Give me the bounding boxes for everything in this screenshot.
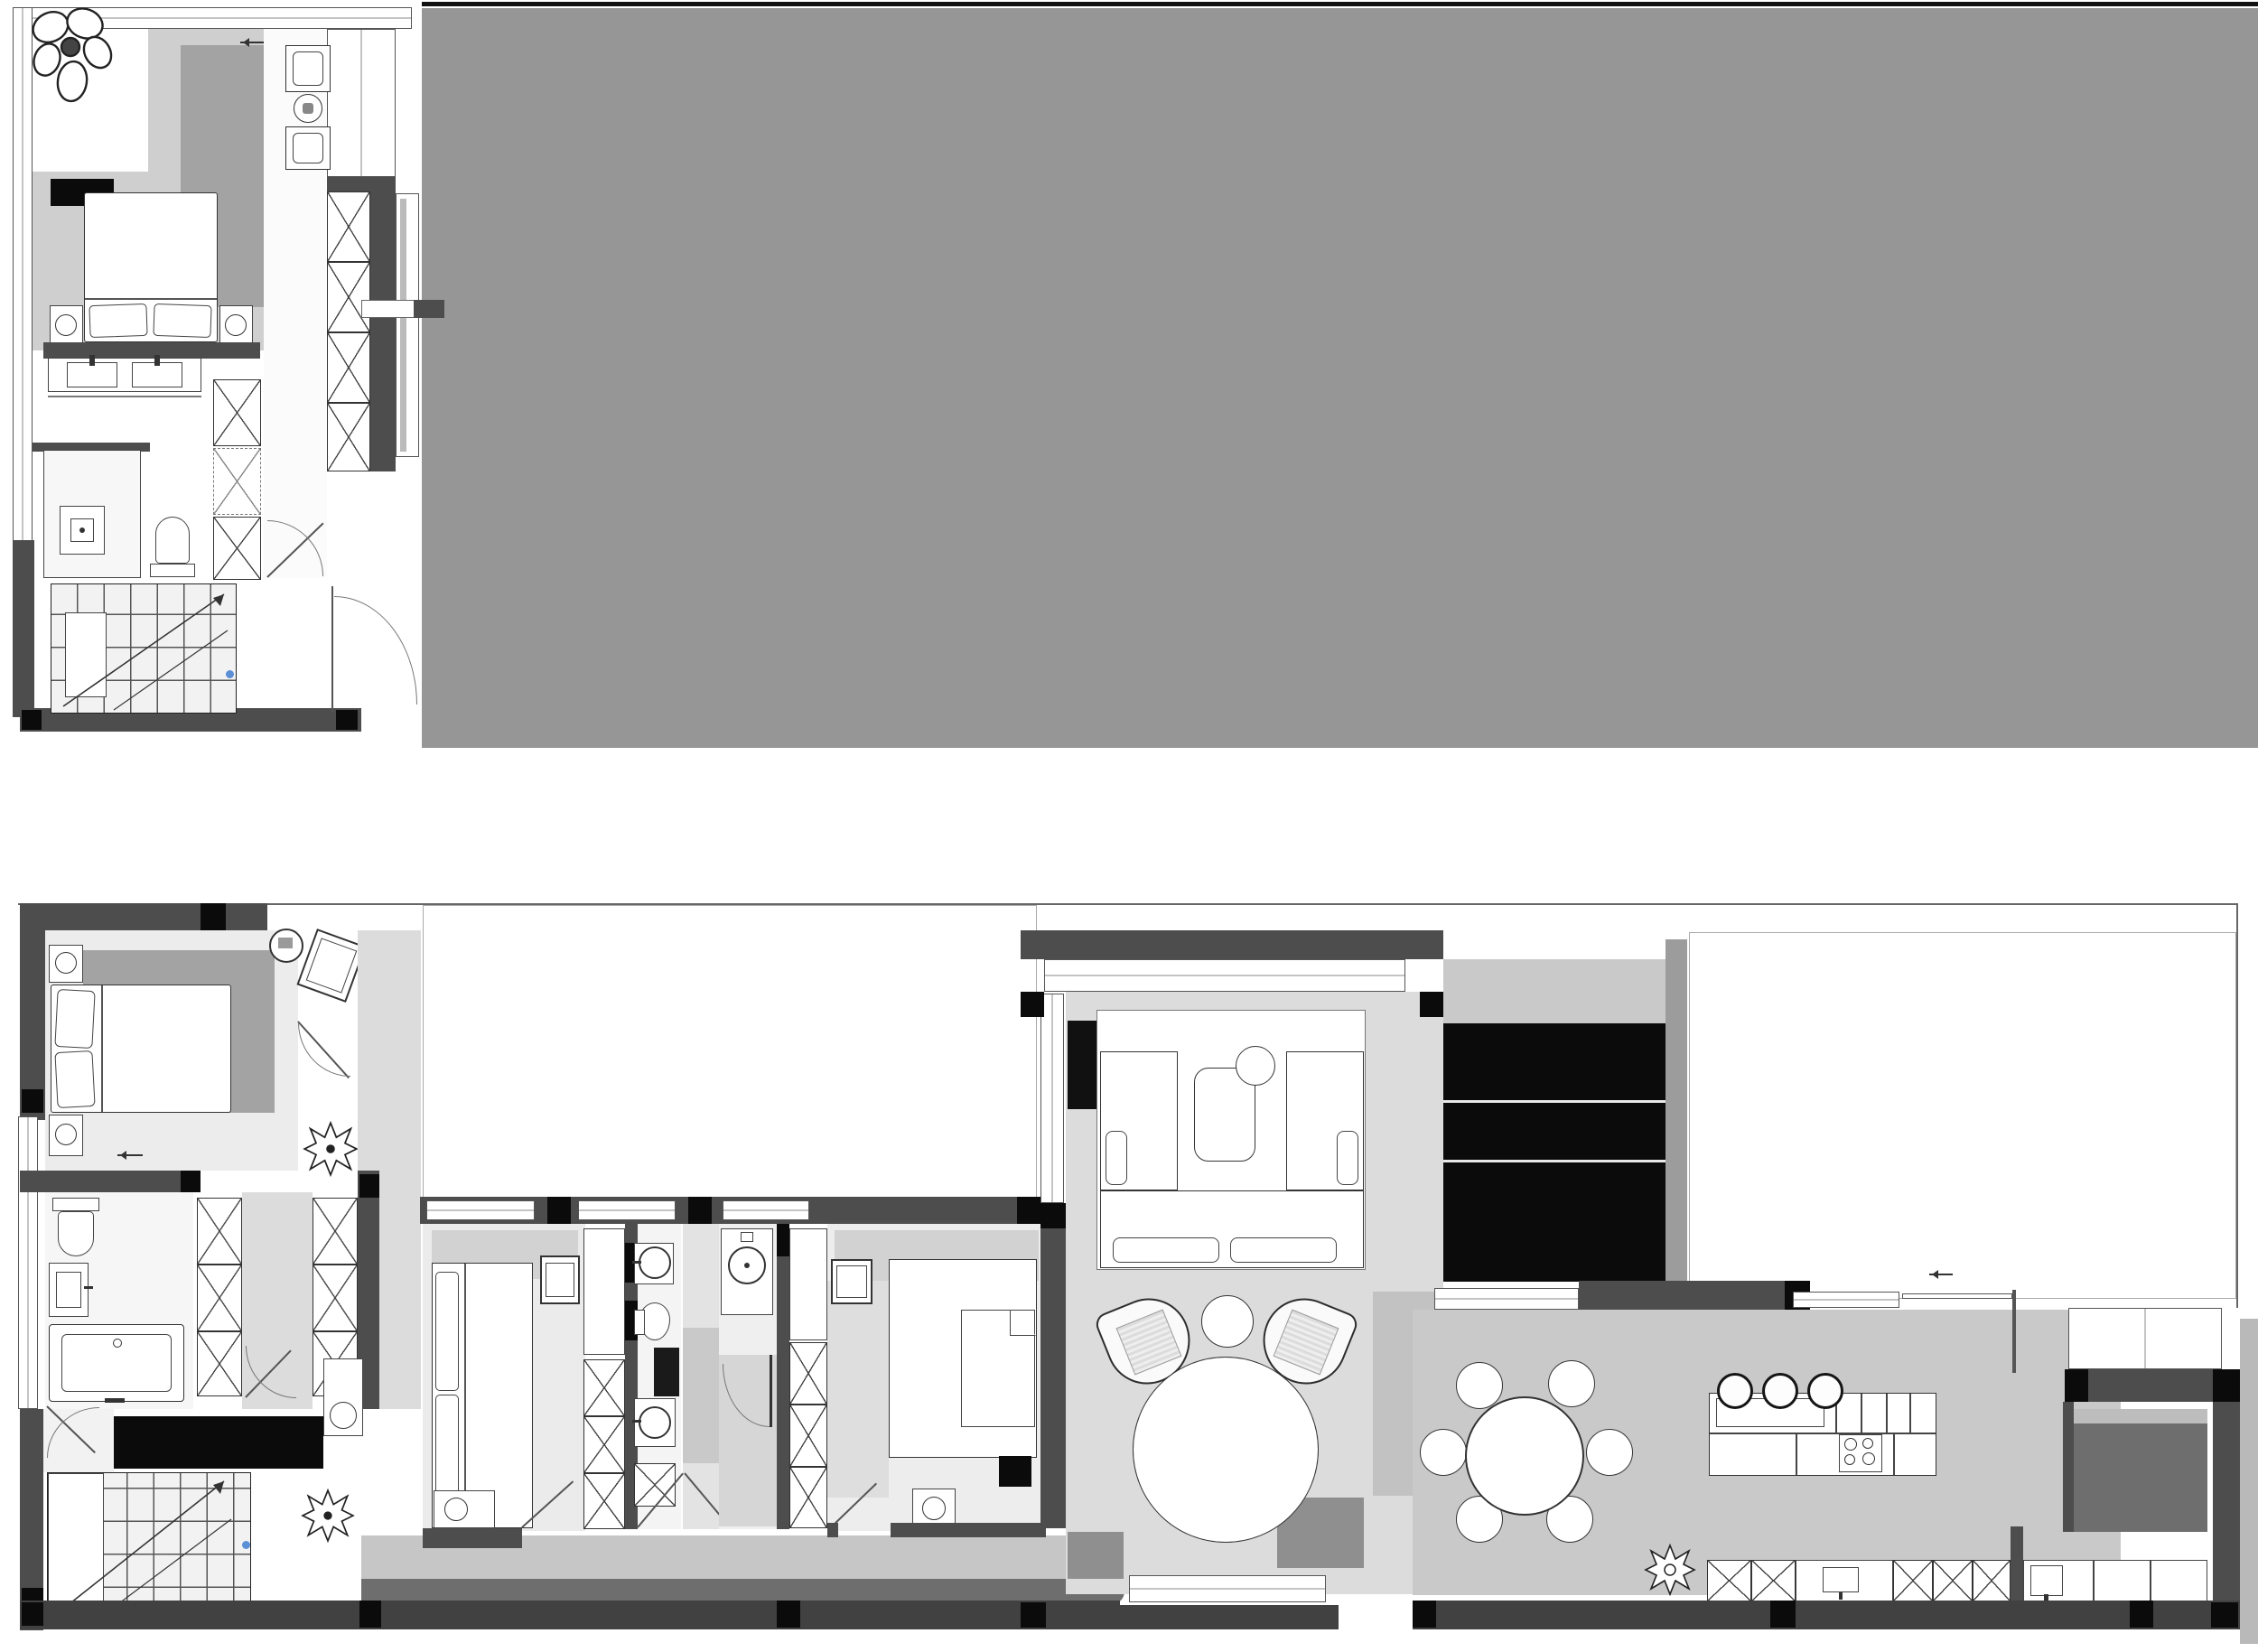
- south-wall-opening: [1339, 1599, 1413, 1631]
- mid-top-column-1: [547, 1197, 571, 1224]
- upper-wardrobe-cell-2: [213, 448, 261, 515]
- plant-icon: [1642, 1543, 1698, 1597]
- upper-vanity-mirror-line: [48, 396, 201, 397]
- poche-wall-band: [114, 1416, 323, 1469]
- upper-shower-dot: [79, 527, 85, 533]
- hob-burner-4: [1862, 1452, 1875, 1465]
- upper-wardrobe-cell-1: [213, 379, 261, 446]
- sofa-bottom-cushion-2: [1230, 1237, 1337, 1263]
- upper-vanity-faucet-1: [89, 355, 95, 366]
- bedroom3-tv-inner: [836, 1265, 867, 1298]
- living-top-column-right: [1420, 992, 1443, 1017]
- upper-basket-dot: [303, 103, 313, 114]
- wc2-faucet-box: [741, 1232, 753, 1242]
- south-column-4: [1021, 1602, 1046, 1628]
- living-west-wall: [1040, 1203, 1066, 1528]
- dining-table: [1465, 1396, 1584, 1516]
- bar-stool-2: [1762, 1373, 1798, 1409]
- upper-vanity-sink-1: [67, 362, 117, 387]
- b1-left-wall: [20, 903, 45, 1120]
- upper-vanity-sink-2: [132, 362, 182, 387]
- upper-toilet-tank: [150, 564, 195, 577]
- outside-shadow-strip: [2240, 1319, 2258, 1644]
- living-top-wall: [1021, 930, 1443, 959]
- bedroom2-panel-strip: [583, 1228, 625, 1355]
- bedroom2-tv-inner: [546, 1263, 574, 1297]
- upper-left-wall-lower: [13, 540, 34, 717]
- mid-top-window-1: [426, 1200, 535, 1220]
- utility-left-wall: [2063, 1402, 2074, 1532]
- hall-wall-column: [359, 1174, 379, 1198]
- south-wall-seg-3: [1413, 1601, 2240, 1629]
- media-wall-top-strip: [1443, 959, 1666, 1023]
- upper-bay-connector-wall: [414, 300, 444, 318]
- arrow-left-icon: [1929, 1274, 1953, 1275]
- wc1-toilet-seat: [634, 1310, 645, 1335]
- b1-wardrobeB-2: [313, 1265, 358, 1331]
- sink-icon: [639, 1406, 671, 1439]
- bar-stool-3: [1807, 1373, 1843, 1409]
- living-top-column-left: [1021, 992, 1044, 1017]
- bathroom1-toilet-tank: [52, 1198, 99, 1211]
- b1-wardrobeA-3: [197, 1331, 242, 1396]
- b1-mid-wall-column: [181, 1171, 201, 1192]
- utility-deck-light: [2074, 1409, 2207, 1423]
- upper-window-bay: [396, 193, 419, 457]
- south-column-8: [2211, 1602, 2238, 1628]
- kitchen-cabinet-x4: [1933, 1560, 1973, 1601]
- upper-closet-side-wall: [370, 191, 396, 471]
- arrow-left-icon: [117, 1154, 143, 1156]
- bedroom2-wardrobe-2: [583, 1416, 625, 1473]
- upper-nightstand-lamp-right: [225, 314, 247, 336]
- upper-floor-plan: [0, 0, 425, 741]
- media-wall-shelf-line-1: [1443, 1100, 1666, 1103]
- utility-deck-dark: [2074, 1423, 2207, 1532]
- living-east-wall-strip: [1666, 939, 1687, 1310]
- south-column-1: [22, 1602, 43, 1626]
- dining-north-wall: [1579, 1281, 1810, 1310]
- sink-icon: [639, 1246, 671, 1279]
- dining-chair-3: [1586, 1429, 1633, 1476]
- sofa-right-arm: [1337, 1131, 1358, 1185]
- lamp-circle-icon: [330, 1402, 357, 1429]
- upper-right-window-return: [327, 29, 396, 177]
- bedroom1-blanket-line: [101, 985, 103, 1112]
- upper-nightstand-lamp-left: [55, 314, 77, 336]
- upper-bottom-column-right: [336, 710, 358, 730]
- wc2-door-leaf: [770, 1355, 772, 1427]
- site-boundary-top: [18, 903, 2238, 905]
- bedroom3-wardrobe-1: [789, 1342, 827, 1405]
- living-floor-shadow-2: [1068, 1532, 1124, 1579]
- media-wall-shelf-line-2: [1443, 1160, 1666, 1162]
- island-div-4: [1909, 1394, 1911, 1433]
- stair-arrow-icon: [47, 1472, 251, 1620]
- bedroom2-wardrobe-1: [583, 1359, 625, 1416]
- upper-closet-cell-3: [327, 332, 370, 403]
- hob-burner-2: [1862, 1438, 1873, 1449]
- upper-door-leaf-2: [331, 586, 333, 713]
- dining-chair-2: [1548, 1360, 1595, 1407]
- upper-wall-below-bed: [43, 342, 260, 359]
- bedroom1-lamp-top: [55, 952, 77, 974]
- utility-top-column-right: [2213, 1369, 2240, 1402]
- bedroom2-blanket-line: [464, 1264, 466, 1527]
- mid-top-window-2: [578, 1200, 676, 1220]
- wc2-right-wall: [777, 1224, 789, 1529]
- toilet-icon: [58, 1211, 94, 1256]
- upper-stair-ref-dot: [226, 670, 234, 678]
- b1-top-column: [201, 903, 226, 930]
- lounge-side-table: [1201, 1295, 1254, 1348]
- kitchen-cabinet-x1: [1707, 1560, 1751, 1601]
- b1-corner-stool-fill: [278, 938, 293, 948]
- wc1-lower-faucet: [632, 1420, 641, 1423]
- sink-icon: [2030, 1565, 2063, 1596]
- kitchen-cabinet-x5: [1973, 1560, 2011, 1601]
- bedroom3-panel-strip: [789, 1228, 827, 1340]
- utility-window-bay: [2068, 1308, 2222, 1369]
- wc1-sink-faucet: [632, 1261, 641, 1264]
- south-column-7: [2130, 1601, 2153, 1628]
- lower-stair-ref-dot: [242, 1541, 250, 1549]
- bar-stool-1: [1717, 1373, 1753, 1409]
- living-south-window: [1129, 1575, 1326, 1602]
- island-div-3: [1886, 1394, 1888, 1433]
- wc2-sink-dot: [744, 1263, 750, 1268]
- mid-top-window-3: [723, 1200, 809, 1220]
- b1-top-wall: [20, 903, 267, 930]
- dining-chair-1: [1456, 1362, 1503, 1409]
- utility-top-column-left: [2065, 1369, 2088, 1402]
- upper-bed-pillow-right: [153, 303, 211, 338]
- tv-icon: [1823, 1567, 1859, 1592]
- island-div-6: [1893, 1433, 1895, 1475]
- wc-corridor-shade: [683, 1328, 719, 1463]
- sofa-side-table: [1236, 1046, 1275, 1086]
- media-wall-black: [1443, 1023, 1666, 1282]
- upper-bed-blanket-line: [85, 298, 217, 300]
- island-div-2: [1861, 1394, 1862, 1433]
- gray-overlay-region: [422, 8, 2258, 748]
- hob-burner-3: [1844, 1454, 1855, 1465]
- stair-arrow-icon: [51, 583, 237, 714]
- south-wall-seg-2: [1120, 1605, 1339, 1629]
- bedroom3-bottom-wall: [891, 1523, 1046, 1537]
- plant-icon: [302, 1116, 359, 1181]
- island-mid-line: [1710, 1433, 1936, 1434]
- b1-wardrobeA-1: [197, 1198, 242, 1265]
- b1-mid-wall: [20, 1171, 201, 1192]
- utility-right-wall: [2213, 1402, 2240, 1629]
- living-west-column: [1040, 1203, 1066, 1228]
- south-column-3: [777, 1601, 800, 1628]
- south-wall-seg-1: [20, 1601, 1120, 1629]
- upper-wardrobe-cell-3: [213, 517, 261, 580]
- kitchen-cabinet-x3: [1893, 1560, 1933, 1601]
- b1-wardrobeA-2: [197, 1265, 242, 1331]
- kitchen-tv-stand: [1839, 1592, 1843, 1600]
- b1-wardrobeB-1: [313, 1198, 358, 1265]
- lower-floor-plan: [0, 894, 2258, 1652]
- bathroom1-sink-faucet: [84, 1286, 93, 1289]
- island-div-5: [1796, 1433, 1797, 1475]
- dining-north-window: [1434, 1288, 1579, 1310]
- lounge-round-table: [1133, 1357, 1319, 1543]
- arrow-left-icon: [240, 42, 264, 43]
- bedroom3-wardrobe-2: [789, 1405, 827, 1467]
- upper-closet-cell-1: [327, 191, 370, 262]
- overlay-top-line: [422, 2, 2258, 6]
- terrace-right: [1689, 932, 2236, 1299]
- bedroom1-lamp-bottom: [55, 1124, 77, 1145]
- kitchen-north-door-leaf: [1902, 1293, 2012, 1299]
- dining-chair-6: [1420, 1429, 1467, 1476]
- bedroom3-bottom-wall-stub: [827, 1523, 838, 1537]
- upper-bay-inner-strip: [400, 199, 406, 452]
- south-column-5: [1413, 1601, 1436, 1628]
- upper-closet-top-wall: [327, 177, 396, 191]
- bedroom2-pillow-1: [435, 1272, 459, 1391]
- bedroom2-bottom-wall: [423, 1528, 522, 1548]
- bedroom2-wardrobe-3: [583, 1473, 625, 1529]
- upper-door-arc-2: [334, 596, 417, 705]
- upper-bottom-column-left: [22, 710, 42, 730]
- upper-closet-cell-4: [327, 403, 370, 471]
- plant-icon: [300, 1483, 356, 1548]
- upper-dryer-drum: [293, 133, 323, 163]
- flower-plant-icon: [25, 5, 116, 114]
- wc1-duct: [654, 1348, 679, 1396]
- bathtub-drain: [113, 1339, 122, 1348]
- wc2-right-column: [777, 1224, 789, 1256]
- bedroom1-pillow-top: [54, 989, 95, 1049]
- utility-cabinet-div: [2150, 1561, 2151, 1601]
- b1-left-window: [18, 1116, 38, 1409]
- bedroom1-pillow-bottom: [54, 1050, 95, 1108]
- living-west-window: [1040, 994, 1064, 1203]
- b1-left-column: [22, 1089, 43, 1113]
- bedroom3-floor-left: [827, 1281, 889, 1498]
- south-column-2: [359, 1601, 381, 1628]
- floor-plan-canvas: [0, 0, 2258, 1652]
- bedroom2-lamp: [444, 1498, 468, 1521]
- toilet-icon: [155, 517, 190, 564]
- upper-bed-pillow-left: [89, 303, 147, 338]
- hob-burner-1: [1844, 1438, 1857, 1451]
- kitchen-north-window: [1793, 1292, 1899, 1308]
- site-boundary-right: [2236, 903, 2238, 1308]
- upper-washer-drum: [293, 51, 323, 86]
- upper-closet-cell-2: [327, 262, 370, 332]
- bedroom3-black-accent: [999, 1456, 1031, 1487]
- bedroom3-lamp: [922, 1497, 946, 1520]
- terrace-middle: [423, 905, 1037, 1198]
- sofa-bottom-cushion-1: [1113, 1237, 1219, 1263]
- kitchen-door-jamb: [2012, 1290, 2016, 1373]
- sofa-left-arm: [1106, 1131, 1127, 1185]
- south-column-6: [1770, 1601, 1796, 1628]
- bathtub-faucet: [105, 1398, 125, 1403]
- living-top-window: [1044, 959, 1405, 992]
- upper-vanity-faucet-2: [154, 355, 160, 366]
- utility-divider-wall: [2011, 1526, 2023, 1604]
- b1-door-arc: [298, 1022, 350, 1077]
- wc1-cabinet: [634, 1463, 676, 1507]
- mid-top-column-2: [688, 1197, 712, 1224]
- kitchen-cabinet-x2: [1751, 1560, 1796, 1601]
- bedroom3-wardrobe-3: [789, 1467, 827, 1528]
- bathroom1-sink-basin: [56, 1272, 81, 1308]
